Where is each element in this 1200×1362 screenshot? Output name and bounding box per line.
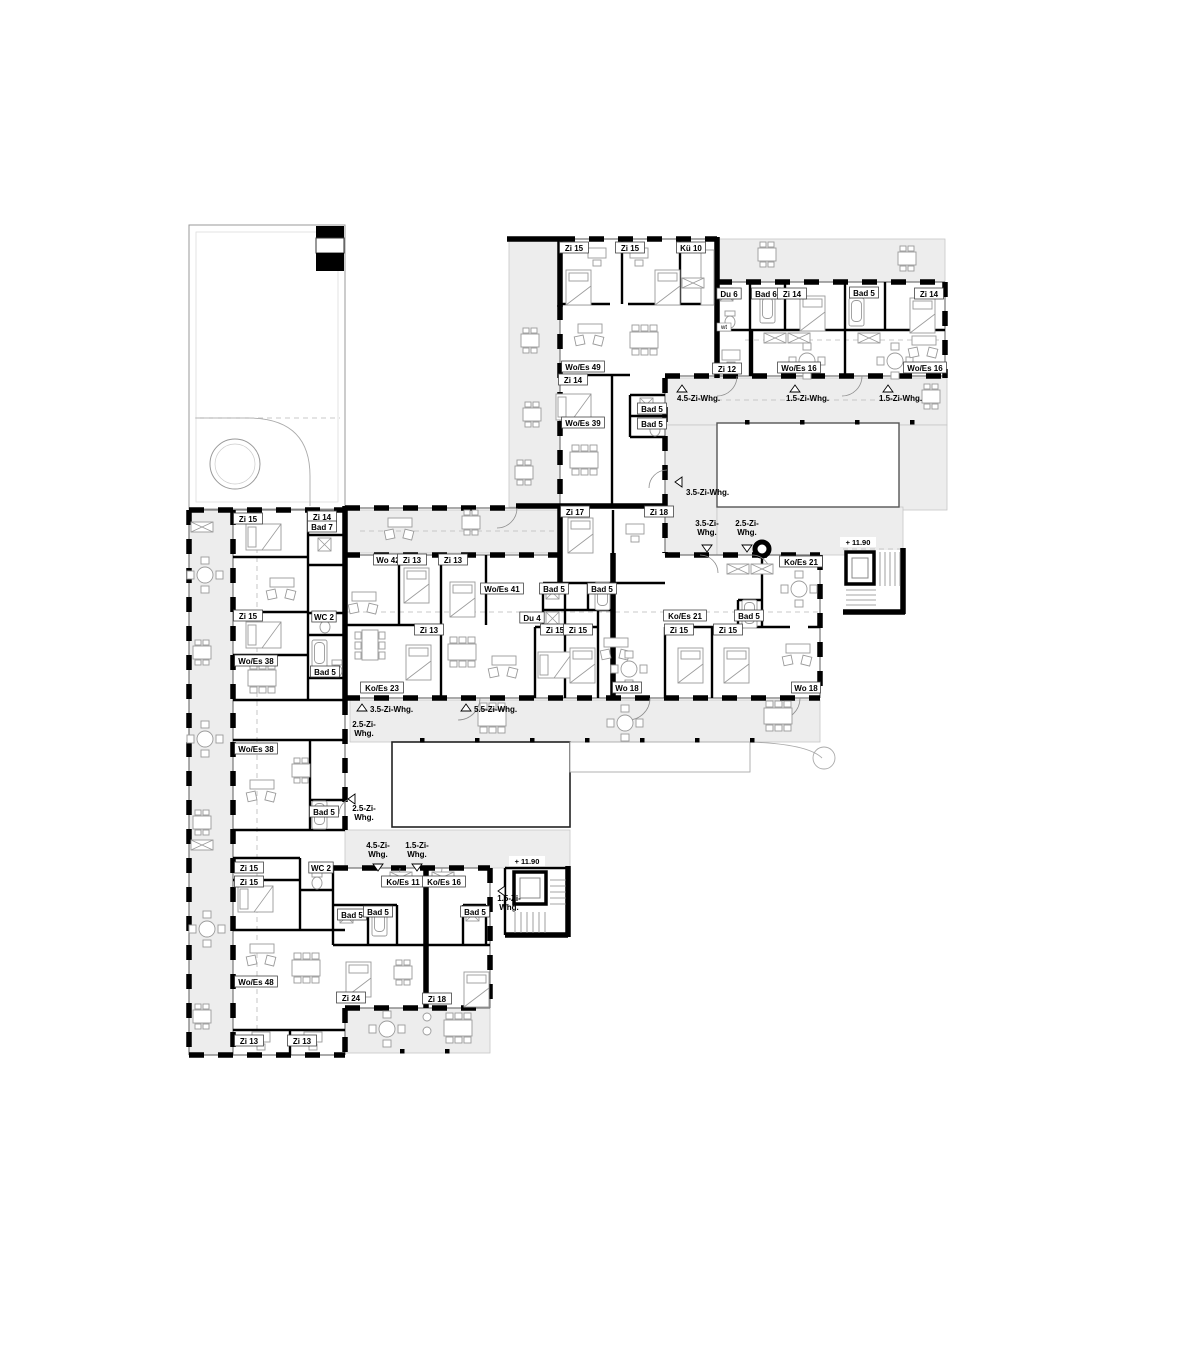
room-label: Wo/Es 41 (484, 585, 520, 594)
furniture-item (312, 640, 327, 668)
round-column (755, 542, 769, 556)
plan-shape (910, 420, 915, 425)
plan-shape (392, 742, 570, 827)
room-label: WC 2 (314, 613, 335, 622)
furniture-item (626, 524, 644, 542)
furniture-item (682, 278, 704, 288)
furniture-item (406, 645, 431, 680)
furniture-item (404, 568, 429, 603)
plan-shape (717, 423, 899, 507)
furniture-item (630, 325, 658, 355)
room-label: Bad 5 (641, 405, 663, 414)
apartment-type-label: 2.5-Zi-Whg. (735, 519, 759, 537)
plan-shape: 3.5-Zi- (695, 519, 719, 528)
furniture-item (782, 644, 812, 666)
room-label: Bad 5 (367, 908, 389, 917)
plan-shape: Whg. (499, 903, 519, 912)
plan-shape: Whg. (737, 528, 757, 537)
furniture-item (727, 564, 749, 574)
apartment-type-label: 4.5-Zi-Whg. (366, 841, 390, 859)
plan-shape (530, 738, 535, 743)
furniture-item (292, 953, 320, 983)
room-label: Bad 7 (311, 523, 333, 532)
furniture-item (800, 296, 825, 331)
plan-shape: Whg. (368, 850, 388, 859)
plan-shape: Whg. (407, 850, 427, 859)
furniture-item (355, 630, 385, 660)
room-label: Bad 5 (853, 289, 875, 298)
furniture-item (849, 298, 864, 326)
room-label: Zi 15 (621, 244, 640, 253)
room-label: Zi 14 (920, 290, 939, 299)
plan-shape (750, 738, 755, 743)
plan-shape (423, 1013, 431, 1021)
room-label: Wo 42 (376, 556, 400, 565)
room-label: Zi 14 (564, 376, 583, 385)
room-label: Ko/Es 21 (784, 558, 818, 567)
room-label: Zi 18 (650, 508, 669, 517)
plan-shape: 3.5-Zi-Whg. (370, 705, 413, 714)
plan-shape: 1.5-Zi- (497, 894, 521, 903)
room-label: Zi 13 (293, 1037, 312, 1046)
furniture-item (538, 652, 573, 678)
plan-shape: Whg. (354, 813, 374, 822)
plan-shape (640, 738, 645, 743)
room-label: Du 4 (523, 614, 541, 623)
room-label: WC 2 (311, 864, 332, 873)
plan-shape (475, 738, 480, 743)
apartment-type-label: 1.5-Zi-Whg. (497, 894, 521, 912)
plan-shape: 5.5-Zi-Whg. (474, 705, 517, 714)
plan-shape (855, 420, 860, 425)
furniture-item (312, 872, 322, 889)
apartment-type-label: 1.5-Zi-Whg. (786, 394, 829, 403)
furniture-item (246, 944, 276, 966)
apartment-type-label: 4.5-Zi-Whg. (677, 394, 720, 403)
furniture-item (751, 564, 773, 574)
room-label: Ko/Es 23 (365, 684, 399, 693)
furniture-item (191, 840, 213, 850)
apartment-type-label: 1.5-Zi-Whg. (879, 394, 922, 403)
room-label: Zi 13 (240, 1037, 259, 1046)
floor-plan-page: Zi 15Zi 15Kü 10Du 6Bad 6Zi 14Bad 5Zi 14Z… (0, 0, 1200, 1362)
room-label: Wo 18 (794, 684, 818, 693)
plan-shape (316, 238, 344, 253)
small-labels: wt (717, 323, 731, 331)
room-label: Du 6 (720, 290, 738, 299)
plan-shape (899, 425, 947, 510)
apartment-type-label: 2.5-Zi-Whg. (352, 804, 376, 822)
plan-shape (585, 738, 590, 743)
room-label: Zi 15 (546, 626, 565, 635)
room-label: Zi 18 (428, 995, 447, 1004)
room-label: Wo/Es 48 (238, 978, 274, 987)
plan-shape: 1.5-Zi-Whg. (879, 394, 922, 403)
apartment-type-label: 3.5-Zi-Whg. (686, 488, 729, 497)
floor-plan-svg: Zi 15Zi 15Kü 10Du 6Bad 6Zi 14Bad 5Zi 14Z… (0, 0, 1200, 1362)
furniture-item (246, 622, 281, 648)
room-label: Wo/Es 16 (907, 364, 943, 373)
room-label: Zi 13 (420, 626, 439, 635)
furniture-item (191, 522, 213, 532)
room-label: Zi 15 (569, 626, 588, 635)
plan-shape (420, 738, 425, 743)
plan-shape (345, 510, 560, 553)
chimney-shaft (316, 226, 344, 271)
room-label: Bad 5 (641, 420, 663, 429)
room-label: Zi 12 (718, 365, 737, 374)
plan-shape: Whg. (697, 528, 717, 537)
apartment-type-label: 3.5-Zi-Whg. (370, 705, 413, 714)
plan-shape: 2.5-Zi- (352, 804, 376, 813)
furniture-item (464, 972, 489, 1007)
plan-shape (800, 420, 805, 425)
apartment-type-label: 5.5-Zi-Whg. (474, 705, 517, 714)
apartment-type-label: 2.5-Zi-Whg. (352, 720, 376, 738)
apartment-type-label: 1.5-Zi-Whg. (405, 841, 429, 859)
plan-shape: 4.5-Zi- (366, 841, 390, 850)
plan-shape: 2.5-Zi- (352, 720, 376, 729)
furniture-item (781, 571, 817, 607)
furniture-item (910, 298, 935, 333)
level-label: + 11.90 (846, 538, 871, 547)
room-label: Zi 15 (565, 244, 584, 253)
room-label: Zi 13 (403, 556, 422, 565)
furniture-item (568, 518, 593, 553)
room-label: Zi 15 (240, 864, 259, 873)
furniture-item (678, 648, 703, 683)
furniture-item (348, 592, 378, 614)
plan-shape: 2.5-Zi- (735, 519, 759, 528)
room-label: Zi 15 (719, 626, 738, 635)
room-label: Bad 5 (314, 668, 336, 677)
room-label: Zi 17 (566, 508, 585, 517)
furniture-item (908, 336, 938, 358)
plan-shape (189, 510, 233, 1055)
furniture-item (570, 445, 598, 475)
plan-shape (445, 1049, 450, 1054)
room-label: Zi 15 (240, 878, 259, 887)
room-label: Bad 5 (738, 612, 760, 621)
room-label: Zi 15 (670, 626, 689, 635)
furniture-item (246, 780, 276, 802)
room-label: Bad 5 (313, 808, 335, 817)
plan-shape: 4.5-Zi-Whg. (677, 394, 720, 403)
room-label: Bad 5 (464, 908, 486, 917)
furniture-item (448, 637, 476, 667)
furniture-item (724, 648, 749, 683)
plan-shape (570, 742, 750, 772)
furniture-item (546, 612, 559, 625)
plan-shape (750, 742, 822, 758)
furniture-item (292, 758, 310, 783)
furniture-item (246, 524, 281, 550)
small-label: wt (720, 325, 727, 331)
plan-shape (745, 420, 750, 425)
furniture-item (450, 582, 475, 617)
plan-shape: 1.5-Zi- (405, 841, 429, 850)
room-label: Bad 5 (591, 585, 613, 594)
room-label: Wo/Es 49 (565, 363, 601, 372)
room-label: Zi 15 (239, 515, 258, 524)
room-label: Ko/Es 11 (386, 878, 420, 887)
furniture-item (394, 960, 412, 985)
apartment-type-label: 3.5-Zi-Whg. (695, 519, 719, 537)
furniture-item (788, 333, 810, 343)
room-label: Wo/Es 16 (781, 364, 817, 373)
furniture-item (588, 248, 606, 266)
room-label: Zi 24 (342, 994, 361, 1003)
furniture-item (556, 394, 591, 420)
plan-shape (813, 747, 835, 769)
plan-shape (350, 700, 820, 742)
plan-shape: Whg. (354, 729, 374, 738)
room-label: Ko/Es 21 (668, 612, 702, 621)
furniture-item (611, 651, 647, 687)
furniture-item (574, 324, 604, 346)
room-label: Zi 13 (444, 556, 463, 565)
furniture-item (858, 333, 880, 343)
furniture-item (655, 270, 680, 305)
furniture-item (764, 333, 786, 343)
room-label: Wo/Es 38 (238, 657, 274, 666)
room-label: Wo/Es 39 (565, 419, 601, 428)
furniture-item (238, 886, 273, 912)
entry-direction-icon (348, 794, 355, 804)
level-label: + 11.90 (515, 857, 540, 866)
plan-shape (400, 1049, 405, 1054)
room-label: Kü 10 (680, 244, 702, 253)
furniture-item (764, 701, 792, 731)
furniture-item (488, 656, 518, 678)
furniture-item (570, 648, 595, 683)
room-label: Bad 5 (543, 585, 565, 594)
plan-shape: 3.5-Zi-Whg. (686, 488, 729, 497)
room-label: Wo 18 (615, 684, 639, 693)
furniture-item (566, 270, 591, 305)
room-label: Bad 5 (341, 911, 363, 920)
room-label: Wo/Es 38 (238, 745, 274, 754)
furniture-item (248, 663, 276, 693)
furniture-item (444, 1013, 472, 1043)
room-label: Ko/Es 16 (427, 878, 461, 887)
furniture-item (318, 538, 331, 551)
room-label: Zi 15 (239, 612, 258, 621)
room-label: Zi 14 (783, 290, 802, 299)
plan-shape: 1.5-Zi-Whg. (786, 394, 829, 403)
plan-shape (316, 253, 344, 271)
furniture-item (266, 578, 296, 600)
plan-shape (423, 1027, 431, 1035)
plan-shape (695, 738, 700, 743)
plan-shape (701, 250, 714, 305)
room-label: Bad 6 (755, 290, 777, 299)
plan-shape (316, 226, 344, 238)
